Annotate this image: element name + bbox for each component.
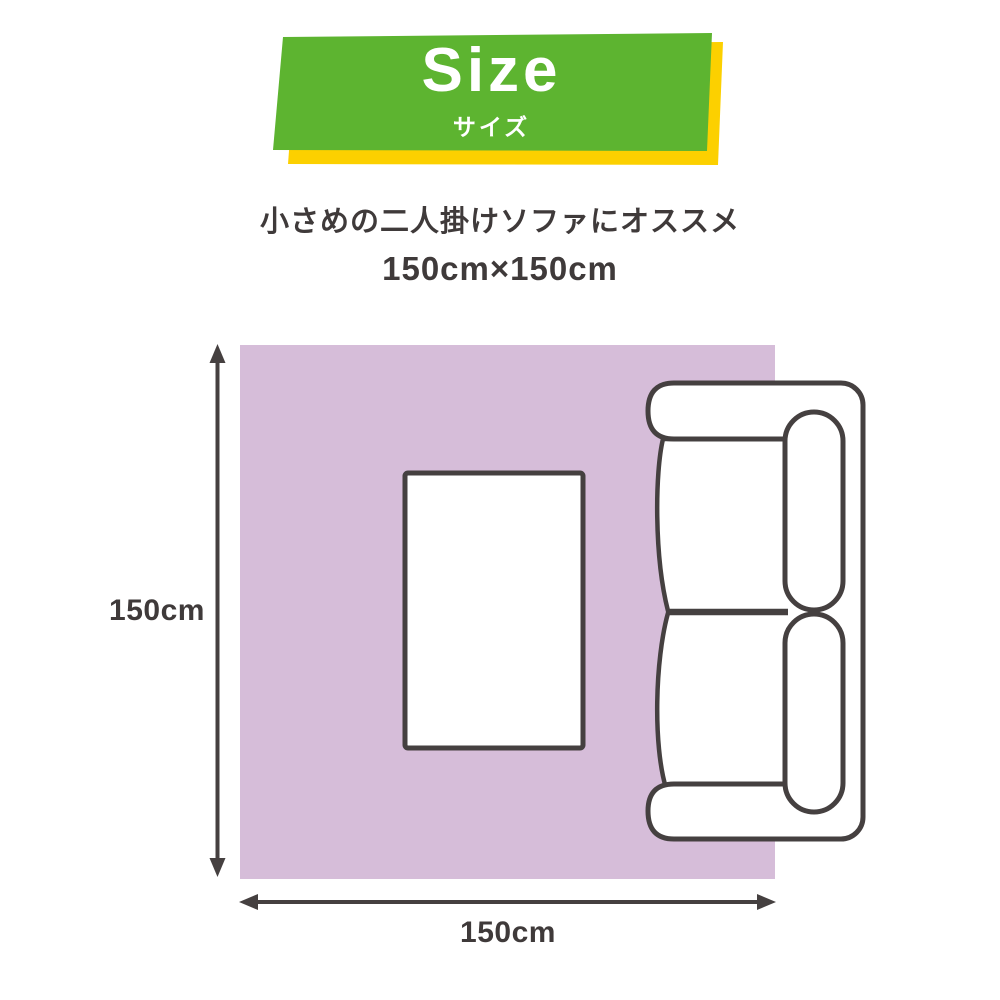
size-infographic: Size サイズ 小さめの二人掛けソファにオススメ 150cm×150cm — [0, 0, 1000, 1000]
sofa-backrest-cushion-top — [785, 412, 843, 610]
sofa-illustration — [648, 383, 863, 839]
sofa-backrest-cushion-bottom — [785, 614, 843, 812]
table-shape — [405, 473, 583, 748]
rug-size-diagram — [0, 0, 1000, 1000]
arrowhead-down-icon — [210, 858, 226, 877]
arrowhead-right-icon — [757, 894, 776, 910]
arrowhead-up-icon — [210, 344, 226, 363]
width-dimension-label: 150cm — [408, 916, 608, 950]
height-dimension-label: 150cm — [95, 594, 219, 628]
arrowhead-left-icon — [239, 894, 258, 910]
